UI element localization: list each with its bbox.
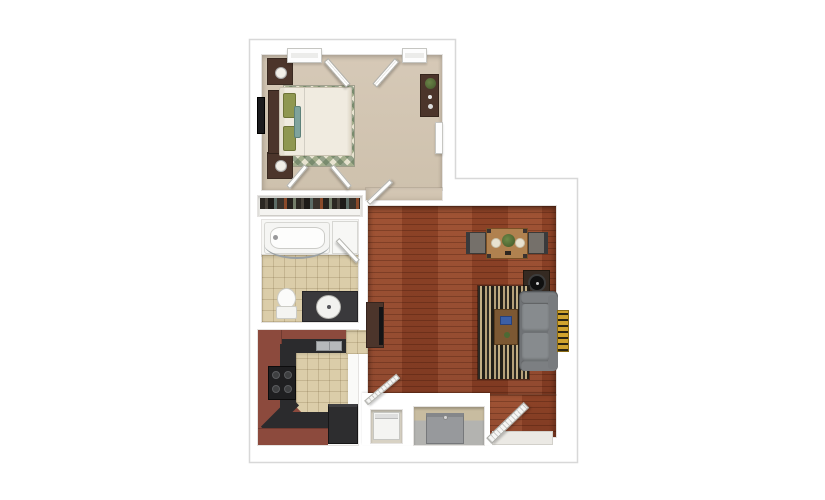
hanging-clothes — [260, 198, 360, 209]
washer — [373, 412, 400, 440]
bedroom-window-right — [402, 48, 427, 63]
dining-chair-right — [528, 232, 548, 254]
bedroom-window-left — [287, 48, 322, 63]
centerpiece-plant-icon — [502, 234, 515, 247]
coffee-table — [494, 309, 518, 345]
kitchen-zone — [258, 330, 358, 445]
refrigerator — [328, 404, 358, 444]
plate-icon — [515, 238, 525, 248]
kitchen-doorway-floor — [346, 330, 368, 354]
stove — [268, 366, 296, 400]
duvet-fold-line — [304, 88, 305, 157]
lamp-icon — [275, 67, 287, 79]
table-leg — [523, 229, 527, 233]
dresser-decor — [428, 104, 433, 109]
sofa — [519, 291, 558, 371]
burner-icon — [284, 385, 292, 393]
bedroom-tv — [257, 97, 265, 134]
burner-icon — [284, 371, 292, 379]
bathroom-vanity — [302, 291, 358, 322]
table-leg — [487, 254, 491, 258]
toilet-tank — [276, 306, 297, 319]
dining-table — [486, 228, 528, 259]
sink-drain-icon — [327, 305, 331, 309]
blue-book — [500, 316, 512, 325]
record-center-dot — [536, 282, 539, 285]
table-leg — [523, 254, 527, 258]
utility-unit — [426, 413, 464, 444]
burner-icon — [272, 385, 280, 393]
bedroom-side-window — [435, 122, 443, 154]
nightstand-bottom — [267, 152, 293, 179]
sofa-cushion — [522, 304, 549, 332]
accent-pillow — [294, 106, 301, 138]
lamp-icon — [275, 160, 287, 172]
kitchen-sink — [316, 341, 342, 351]
plant-icon — [425, 78, 436, 89]
kitchen-cabinet-bottom — [258, 428, 328, 445]
plate-icon — [491, 238, 501, 248]
burner-icon — [272, 371, 280, 379]
dresser — [420, 74, 439, 117]
small-plant-icon — [504, 332, 510, 338]
closet-shelf — [260, 209, 360, 216]
living-tv — [379, 307, 383, 345]
dining-chair-left — [466, 232, 486, 254]
media-console — [366, 302, 384, 348]
table-leg — [487, 229, 491, 233]
sofa-cushion — [522, 333, 549, 361]
utility-unit-cap — [443, 415, 448, 420]
gold-wall-art — [557, 310, 569, 352]
bed — [279, 87, 352, 156]
table-decor — [505, 251, 511, 255]
tub-faucet-icon — [273, 235, 278, 240]
sink-divider — [329, 342, 330, 350]
washer-controls — [375, 414, 398, 419]
floorplan-canvas — [0, 0, 825, 500]
dresser-decor — [428, 95, 432, 99]
